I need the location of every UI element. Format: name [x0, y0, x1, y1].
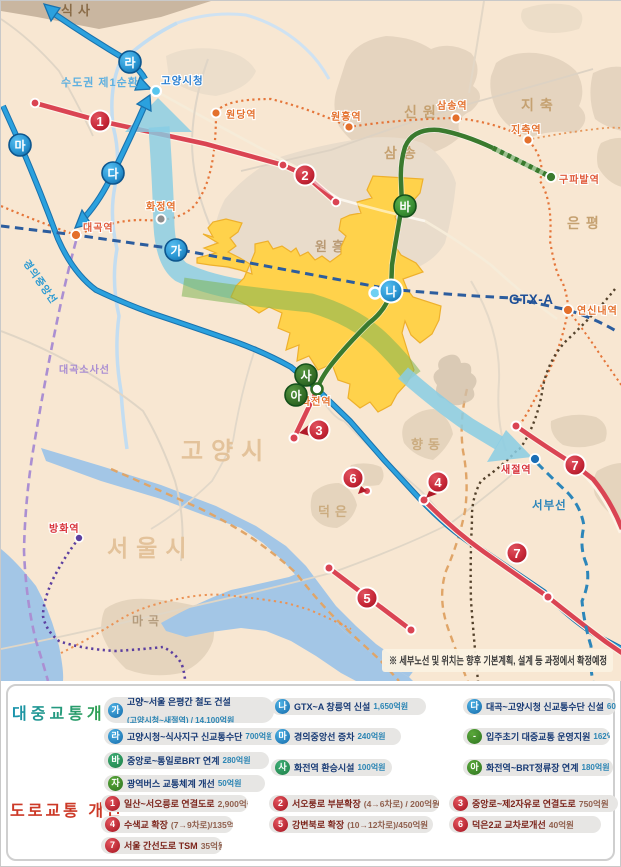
svg-text:지축: 지축 [521, 97, 559, 113]
svg-text:마곡: 마곡 [132, 613, 164, 628]
svg-text:3: 3 [315, 423, 322, 438]
svg-text:마: 마 [14, 138, 25, 153]
svg-text:6: 6 [349, 471, 356, 486]
svg-text:화정역: 화정역 [146, 200, 177, 213]
svg-text:가: 가 [170, 243, 181, 258]
svg-text:서부선: 서부선 [532, 498, 567, 512]
svg-text:서울시: 서울시 [107, 535, 194, 561]
svg-text:덕은: 덕은 [318, 504, 352, 519]
svg-text:다: 다 [107, 166, 118, 181]
svg-text:사: 사 [300, 368, 311, 383]
svg-text:원당역: 원당역 [226, 108, 257, 121]
svg-text:삼송역: 삼송역 [437, 99, 468, 112]
svg-text:※ 세부노선 및 위치는 향후 기본계획, 설계 등 과정에: ※ 세부노선 및 위치는 향후 기본계획, 설계 등 과정에서 확정예정 [389, 654, 607, 667]
svg-text:식사: 식사 [61, 3, 95, 18]
svg-text:고양시: 고양시 [181, 438, 271, 465]
svg-text:1: 1 [96, 114, 103, 129]
svg-text:나: 나 [385, 284, 396, 299]
svg-text:원흥역: 원흥역 [331, 110, 362, 123]
svg-text:아: 아 [290, 388, 301, 403]
svg-text:고양시청: 고양시청 [161, 74, 204, 87]
svg-text:연신내역: 연신내역 [577, 304, 618, 317]
svg-text:지축역: 지축역 [511, 123, 542, 136]
svg-text:바: 바 [399, 199, 410, 214]
svg-text:5: 5 [363, 591, 370, 606]
svg-text:방화역: 방화역 [49, 522, 80, 535]
svg-text:2: 2 [301, 168, 308, 183]
svg-text:GTX-A: GTX-A [509, 292, 554, 307]
svg-text:4: 4 [434, 475, 442, 490]
svg-text:대곡역: 대곡역 [83, 221, 114, 234]
svg-text:은평: 은평 [567, 215, 605, 231]
svg-text:구파발역: 구파발역 [559, 173, 600, 186]
svg-text:향동: 향동 [411, 437, 445, 452]
svg-text:대곡소사선: 대곡소사선 [59, 363, 110, 376]
svg-text:라: 라 [124, 55, 135, 70]
svg-text:수도권 제1순환: 수도권 제1순환 [61, 75, 139, 89]
svg-text:새절역: 새절역 [501, 463, 532, 476]
svg-text:7: 7 [513, 546, 520, 561]
svg-text:7: 7 [571, 458, 578, 473]
